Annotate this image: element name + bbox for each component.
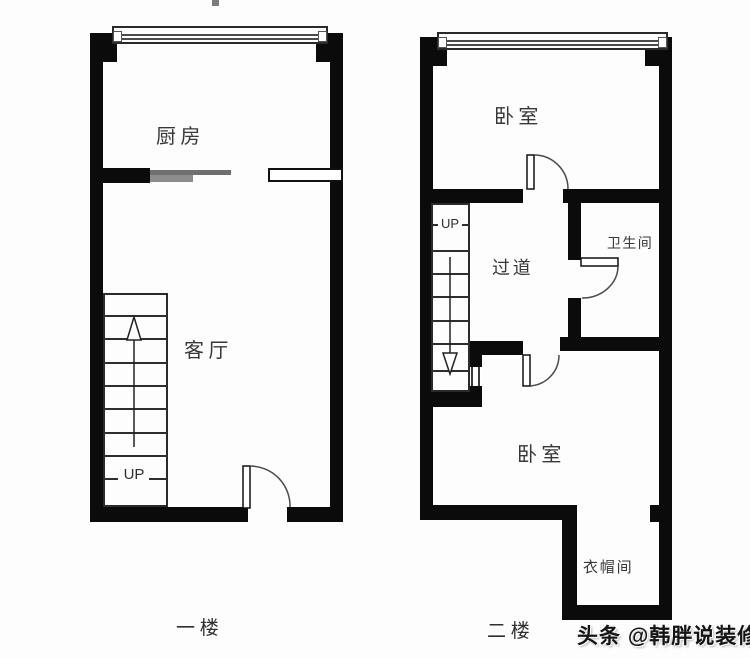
floor2-window-glass-line-1 bbox=[443, 40, 662, 42]
floor2-bathroom-wall-bottom bbox=[560, 337, 672, 351]
floor2-stair-opening-line-2 bbox=[478, 367, 480, 386]
floor2-plan: UP 卧室 卫生间 过道 卧室 衣帽间 二楼 bbox=[0, 0, 750, 658]
watermark-text: 头条 @韩胖说装修 bbox=[577, 620, 750, 650]
floor2-right-wall-stub bbox=[650, 505, 660, 522]
floor2-stair-tread bbox=[432, 273, 469, 275]
floor2-window-end-cap-left bbox=[438, 37, 447, 48]
floor2-bedroom-bottom-label: 卧室 bbox=[517, 438, 566, 467]
floor2-corridor-label: 过道 bbox=[492, 254, 533, 280]
floor2-cloakroom-wall-bottom bbox=[562, 605, 672, 620]
floor2-bathroom-wall-upper bbox=[568, 203, 581, 260]
floor2-cloakroom-label: 衣帽间 bbox=[583, 556, 633, 577]
floor2-stair-tread bbox=[432, 320, 469, 322]
floor2-mid-wall-left bbox=[420, 189, 523, 203]
floor2-stair-bottom-wall bbox=[420, 392, 482, 407]
floor2-name-label: 二楼 bbox=[487, 616, 535, 643]
floor2-bedroom-top-label: 卧室 bbox=[494, 100, 543, 129]
floor2-stair-wall-upper bbox=[470, 341, 482, 367]
floor2-stair-tread bbox=[432, 343, 469, 345]
floor2-stair-tread bbox=[432, 296, 469, 298]
floor2-window-end-cap-right bbox=[658, 37, 667, 48]
floor2-wall-right bbox=[659, 37, 672, 620]
floor2-up-label: UP bbox=[434, 216, 466, 231]
floor2-mid-wall-right bbox=[563, 189, 672, 203]
floor2-stair-tread bbox=[432, 370, 469, 372]
floor2-bathroom-label: 卫生间 bbox=[607, 233, 653, 253]
floor2-window-glass-line-2 bbox=[443, 44, 662, 46]
floor2-stair-tread bbox=[432, 250, 469, 252]
floor2-stair-opening-line-1 bbox=[471, 367, 473, 386]
floor2-bedroom-bottom-wall bbox=[420, 505, 577, 520]
floorplan-image: UP 厨房 客厅 一楼 bbox=[0, 0, 750, 658]
floor2-cloakroom-wall-left bbox=[562, 505, 577, 620]
